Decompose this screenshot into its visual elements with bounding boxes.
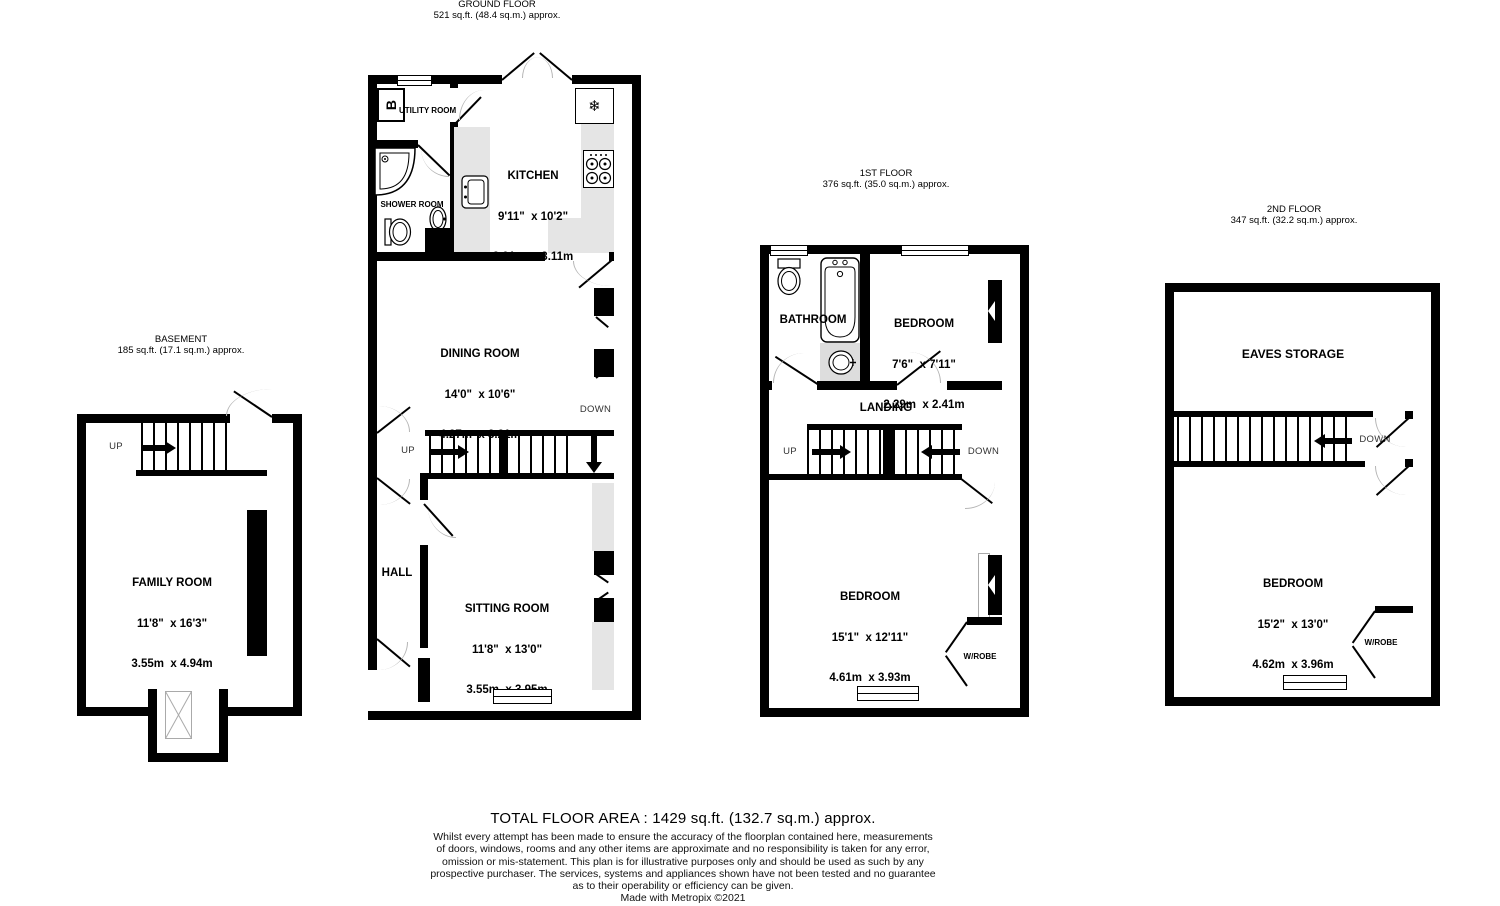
toilet: [384, 216, 412, 248]
floor-name: BASEMENT: [66, 335, 296, 346]
window: [901, 245, 969, 256]
snowflake-icon: ❄: [588, 97, 601, 115]
door-arc: [379, 642, 408, 670]
stair-rail: [769, 474, 962, 480]
first-floor-title: 1ST FLOOR 376 sq.ft. (35.0 sq.m.) approx…: [781, 169, 991, 190]
room-dim-imperial: 15'1" x 12'11": [810, 632, 930, 646]
wardrobe-door: [1352, 645, 1376, 678]
wall: [817, 381, 897, 390]
disclaimer-line: prospective purchaser. The services, sys…: [383, 868, 983, 880]
room-label-eaves: EAVES STORAGE: [1213, 347, 1373, 361]
door-arc: [421, 148, 449, 177]
wall: [769, 381, 772, 390]
up-arrow-icon: [165, 441, 176, 455]
up-arrow-shaft: [812, 449, 840, 455]
second-floor-title: 2ND FLOOR 347 sq.ft. (32.2 sq.m.) approx…: [1189, 205, 1399, 226]
room-dim-metric: 4.62m x 3.96m: [1233, 659, 1353, 673]
room-dim-imperial: 14'0" x 10'6": [420, 389, 540, 403]
alcove-shading: [592, 622, 614, 690]
wall: [420, 479, 428, 500]
window: [397, 75, 432, 86]
down-arrow-icon: [586, 462, 602, 473]
chimney-breast: [594, 349, 614, 377]
room-dim-imperial: 11'8" x 16'3": [92, 618, 252, 632]
disclaimer-line: Whilst every attempt has been made to en…: [383, 831, 983, 843]
alcove-shading: [592, 483, 614, 551]
floor-name: GROUND FLOOR: [392, 0, 602, 11]
up-arrow-icon: [840, 445, 851, 459]
room-name: FAMILY ROOM: [92, 577, 252, 591]
toilet: [775, 258, 803, 296]
floor-name: 1ST FLOOR: [781, 169, 991, 180]
door-arc: [459, 90, 484, 120]
wall: [947, 381, 1002, 390]
room-label-hall: HALL: [377, 567, 417, 579]
stairs-up-label: UP: [96, 441, 136, 452]
wall: [420, 545, 428, 648]
chimney-breast: [594, 598, 614, 622]
room-name: BEDROOM: [1233, 578, 1353, 592]
room-label-utility: UTILITY ROOM: [399, 106, 461, 115]
stair-divider: [883, 430, 893, 474]
stair-rail: [1174, 461, 1365, 467]
down-arrow-icon: [1314, 434, 1325, 448]
wall: [967, 617, 1002, 625]
room-label-bathroom: BATHROOM: [773, 314, 853, 326]
bathtub: [820, 257, 860, 343]
basement-plan: UP FAMILY ROOM 11'8" x 16'3" 3.55m x 4.9…: [77, 414, 302, 716]
corner-shower: [374, 147, 416, 196]
disclaimer-line: of doors, windows, rooms and any other i…: [383, 843, 983, 855]
down-arrow-icon: [921, 445, 932, 459]
floor-area: 521 sq.ft. (48.4 sq.m.) approx.: [392, 11, 602, 22]
stair-rail: [420, 473, 614, 479]
door-arc: [428, 507, 456, 538]
window: [857, 686, 919, 701]
wall: [1375, 606, 1413, 613]
stairs-up-label: UP: [772, 446, 808, 457]
floor-name: 2ND FLOOR: [1189, 205, 1399, 216]
room-name: BEDROOM: [810, 591, 930, 605]
room-label-wardrobe: W/ROBE: [1356, 638, 1406, 647]
light-well-hatch: [165, 691, 192, 739]
stair-divider: [499, 436, 506, 473]
chimney-breast: [594, 551, 614, 575]
stairs-down-label: DOWN: [961, 446, 1006, 457]
door-arc: [226, 389, 272, 416]
disclaimer: Whilst every attempt has been made to en…: [383, 831, 983, 905]
stair-rail: [136, 470, 267, 476]
ground-floor-plan: B UTILITY ROOM SHOWER ROOM: [368, 75, 641, 720]
wardrobe-door: [945, 621, 968, 652]
down-arrow-shaft: [591, 436, 597, 464]
window: [493, 689, 552, 704]
door-arc: [965, 482, 995, 509]
chimney-breast: [594, 288, 614, 316]
basement-title: BASEMENT 185 sq.ft. (17.1 sq.m.) approx.: [66, 335, 296, 356]
room-name: BEDROOM: [864, 318, 984, 332]
boiler-label: B: [383, 100, 399, 110]
window: [770, 245, 808, 256]
room-label-shower: SHOWER ROOM: [377, 200, 447, 209]
floor-area: 347 sq.ft. (32.2 sq.m.) approx.: [1189, 216, 1399, 227]
staircase-treads: [506, 436, 576, 473]
up-arrow-shaft: [430, 449, 458, 455]
room-dim-metric: 4.61m x 3.93m: [810, 672, 930, 686]
window: [1283, 675, 1347, 690]
room-label-family-room: FAMILY ROOM 11'8" x 16'3" 3.55m x 4.94m: [92, 550, 252, 699]
room-name: KITCHEN: [473, 170, 593, 184]
ground-floor-title: GROUND FLOOR 521 sq.ft. (48.4 sq.m.) app…: [392, 0, 602, 21]
room-dim-imperial: 9'11" x 10'2": [473, 211, 593, 225]
sink: [827, 349, 857, 376]
room-label-wardrobe: W/ROBE: [955, 652, 1005, 661]
stairs-down-label: DOWN: [573, 404, 618, 415]
porch-notch: [368, 670, 418, 711]
total-floor-area: TOTAL FLOOR AREA : 1429 sq.ft. (132.7 sq…: [433, 810, 933, 827]
disclaimer-line: as to their operability or efficiency ca…: [383, 880, 983, 892]
floor-area: 376 sq.ft. (35.0 sq.m.) approx.: [781, 180, 991, 191]
chimney-edge: [595, 316, 609, 328]
down-arrow-shaft: [932, 449, 960, 455]
room-dim-imperial: 15'2" x 13'0": [1233, 619, 1353, 633]
room-dim-metric: 3.55m x 4.94m: [92, 658, 252, 672]
freezer-unit: ❄: [575, 88, 614, 124]
room-dim-imperial: 11'8" x 13'0": [447, 644, 567, 658]
vanity-block: [425, 228, 451, 253]
credit-line: Made with Metropix ©2021: [383, 892, 983, 904]
room-name: SITTING ROOM: [447, 603, 567, 617]
wall: [450, 84, 458, 88]
wall: [377, 252, 545, 261]
down-arrow-shaft: [1325, 438, 1355, 444]
second-floor-plan: EAVES STORAGE DOWN BEDROOM 15'2" x 13'0"…: [1165, 283, 1440, 706]
up-arrow-shaft: [141, 445, 165, 451]
floorplan-page: GROUND FLOOR 521 sq.ft. (48.4 sq.m.) app…: [0, 0, 1500, 906]
boiler-unit: B: [377, 88, 405, 122]
up-arrow-icon: [458, 445, 469, 459]
light-well: [148, 689, 228, 762]
stairs-up-label: UP: [390, 445, 426, 456]
disclaimer-line: omission or mis-statement. This plan is …: [383, 856, 983, 868]
first-floor-plan: BATHROOM BEDROOM 7'6" x 7'11" 2.29m x 2.…: [760, 245, 1029, 717]
room-name: DINING ROOM: [420, 348, 540, 362]
floor-area: 185 sq.ft. (17.1 sq.m.) approx.: [66, 346, 296, 357]
wall-corner: [418, 658, 430, 702]
room-label-landing: LANDING: [836, 402, 936, 414]
